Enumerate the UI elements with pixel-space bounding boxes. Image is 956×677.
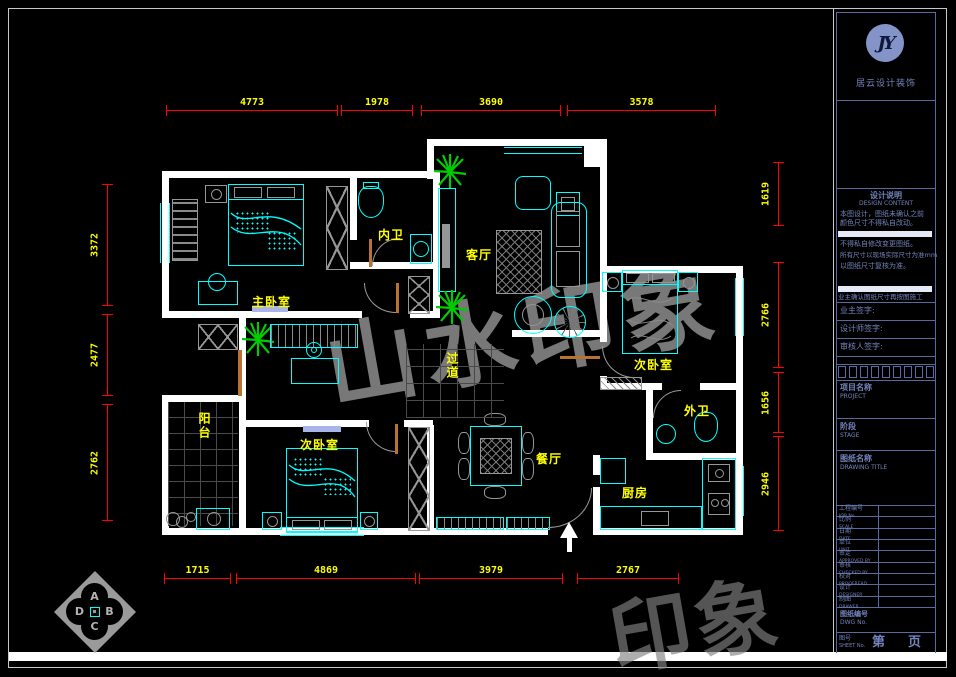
grid-cell [849,366,857,378]
dresser-mirror [208,273,226,291]
wall-segment [162,171,434,178]
stage-label-en: STAGE [840,433,859,440]
dim-value: 2767 [616,565,640,576]
washing-machine [196,508,230,530]
dim-left-2: 2477 [107,315,108,395]
titleblock-vline [836,12,837,653]
row-cn: 校对 [839,573,851,580]
plant-icon [434,288,470,326]
dim-bottom-2: 4869 [237,578,415,579]
chair [458,458,470,480]
sheet-label-cn: 图号 [839,636,851,643]
grid-cell [915,366,923,378]
compass-letter: B [105,605,113,618]
door-leaf-master [396,283,399,313]
dim-bottom-4: 2767 [578,578,678,579]
rug [496,230,542,294]
bed-right [622,270,678,354]
titleblock-hline [836,12,936,13]
titleblock-frame-left [833,9,834,652]
dim-top-3: 3690 [422,110,560,111]
desk-chair-person [306,342,322,358]
company-logo: JY [866,24,904,62]
round-table [514,296,552,334]
project-label-en: PROJECT [840,394,866,401]
row-cn: 单位 [839,539,851,546]
wall-segment [246,311,362,318]
wall-segment [646,390,653,460]
window-symbol [735,278,744,336]
wall-segment [700,383,743,390]
dim-value: 1978 [365,97,389,108]
titleblock-hline [836,320,936,321]
chair [522,458,534,480]
cad-sheet: 山水印象 印象 4773 1978 3690 3578 1715 4869 39… [0,0,956,677]
titleblock-label-divider [878,505,879,607]
nightstand [678,272,698,292]
row-cn: 审核 [839,562,851,569]
wall-segment [350,178,357,240]
nightstand [205,185,227,203]
compass-letter: A [90,590,99,603]
row-cn: 审定 [839,550,851,557]
dwg-no-label-en: DWG No. [840,620,867,627]
row-cn: 工程编号 [839,505,863,512]
sheet-label-en: SHEET No. [839,644,865,650]
window-symbol [735,466,744,516]
dim-value: 1619 [761,182,772,206]
plant-pot [186,512,196,522]
dim-value: 1715 [185,565,209,576]
dim-value: 3690 [479,97,503,108]
titleblock-vline [935,12,936,653]
dim-value: 4773 [240,97,264,108]
stage-label-cn: 阶段 [840,423,856,432]
titleblock-hline [836,380,936,381]
chair [458,432,470,454]
nightstand [360,512,378,530]
shoe-cabinet [600,377,642,390]
room-label-living: 客厅 [466,246,492,263]
dim-left-3: 2762 [107,405,108,520]
dim-left-1: 3372 [107,185,108,305]
door-leaf-bed-bottom [395,424,398,454]
dim-value: 2946 [761,471,772,495]
titleblock-hline [836,302,936,303]
door-leaf-balcony [238,350,242,396]
info-row-label: 制图DRAWER [839,597,859,611]
plant-icon [432,152,468,190]
grid-cell [838,366,846,378]
bed-bottom [286,448,358,532]
notes-line: 颜色尺寸不得私自改动。 [840,220,917,228]
wall-segment [427,139,607,146]
grid-cell [871,366,879,378]
drawing-title-label-en: DRAWING TITLE [840,465,887,472]
bed-master [228,184,304,266]
signature-owner: 业主签字: [840,307,875,316]
signature-checker: 审核人签字: [840,343,883,352]
fan-table [554,306,586,338]
dim-right-3: 1656 [778,373,779,432]
bottom-band [9,652,947,661]
notes-confirm: 业主确认图纸尺寸再按图施工 [838,294,923,301]
titleblock-hline [836,364,936,365]
titleblock-hline [836,100,936,101]
row-en: DRAWER [839,605,859,610]
room-label-outer-bath: 外卫 [684,402,710,419]
toilet [358,186,384,218]
dwg-no-label-cn: 图纸编号 [840,611,868,619]
dim-value: 2766 [761,303,772,327]
bathroom-sink [656,424,676,444]
dim-value: 2762 [90,450,101,474]
row-cn: 比例 [839,516,851,523]
wall-segment [162,395,246,402]
notes-line: 不得私自修改变更图纸。 [840,241,917,249]
project-label-cn: 项目名称 [840,384,872,393]
dim-top-4: 3578 [568,110,715,111]
window-symbol [504,147,582,154]
titleblock-hline [836,338,936,339]
drawing-title-label-cn: 图纸名称 [840,455,872,464]
titleblock-hline [836,188,936,189]
titleblock-hline [836,450,936,451]
room-label-balcony: 阳台 [196,412,213,440]
wall-segment [162,311,246,318]
notes-highlight-bar [838,286,932,292]
compass-center [90,607,100,617]
room-label-kitchen: 厨房 [622,484,648,501]
dim-right-2: 2766 [778,263,779,367]
dim-top-2: 1978 [342,110,412,111]
compass: A B C D [55,572,135,652]
sofa [172,199,198,261]
nightstand [262,512,282,530]
dim-right-1: 1619 [778,163,779,225]
wardrobe [326,186,348,270]
kitchen-counter [702,458,736,530]
logo-monogram: JY [877,33,892,54]
titleblock-hline [836,356,936,357]
sideboard [506,517,550,530]
sheet-page-di: 第 [872,636,885,650]
notes-line: 以图纸尺寸复核为准。 [840,263,910,271]
dim-value: 3578 [629,97,653,108]
desk [291,358,339,384]
compass-letter: D [75,605,84,618]
grid-cell [893,366,901,378]
window-symbol [160,203,170,263]
company-name: 居云设计装饰 [836,80,936,90]
entry-arrow [560,522,578,538]
row-cn: 日期 [839,528,851,535]
notes-line: 本图设计，图纸未确认之前 [840,211,924,219]
wall-segment [404,420,433,427]
compass-point-d: D [66,598,93,625]
kitchen-counter-bottom [600,506,702,530]
room-label-bed-bottom: 次卧室 [300,436,339,453]
chair [484,486,506,499]
notes-title-en: DESIGN CONTENT [836,201,936,208]
room-label-master: 主卧室 [252,293,291,310]
cabinet [198,324,238,350]
nightstand [602,272,622,292]
titleblock-hline [836,632,936,633]
entry-arrow-stem [567,538,572,552]
grid-cell [926,366,934,378]
dim-top-1: 4773 [167,110,337,111]
door-leaf-bath [369,239,372,267]
row-cn: 制图 [839,596,851,603]
door-leaf-bed-right [560,356,600,359]
dim-value: 4869 [314,565,338,576]
sofa-long [551,202,587,298]
dim-value: 1656 [761,390,772,414]
room-label-inner-bath: 内卫 [378,226,404,243]
notes-line: 所有尺寸以现场实际尺寸为准mm [840,252,937,259]
bath-shelf [408,276,430,314]
grid-cell [860,366,868,378]
tall-cabinet [408,427,430,531]
room-label-bed-right: 次卧室 [634,356,673,373]
tv [442,224,450,268]
sheet-page-ye: 页 [908,636,921,650]
notes-highlight-bar [838,231,932,237]
room-label-corridor: 过道 [444,352,461,380]
dim-right-4: 2946 [778,437,779,530]
wall-segment [600,146,607,273]
signature-designer: 设计师签字: [840,325,883,334]
dim-value: 3979 [479,565,503,576]
titleblock-hline [836,418,936,419]
wall-segment [593,455,600,475]
chair [522,432,534,454]
sheet-border [8,8,947,668]
sideboard [436,517,504,530]
armchair [515,176,551,210]
toilet-tank [363,182,379,189]
compass-letter: C [90,620,98,633]
dim-bottom-1: 1715 [165,578,230,579]
row-cn: 设计 [839,584,851,591]
dim-bottom-3: 3979 [420,578,562,579]
curtain-symbol [303,426,341,432]
room-label-dining: 餐厅 [536,450,562,467]
fridge [600,458,626,484]
grid-cell [904,366,912,378]
dining-table-top [480,438,512,474]
grid-cell [882,366,890,378]
wall-segment [593,487,600,535]
dim-value: 2477 [90,343,101,367]
dim-value: 3372 [90,233,101,257]
bathroom-sink [410,234,432,264]
